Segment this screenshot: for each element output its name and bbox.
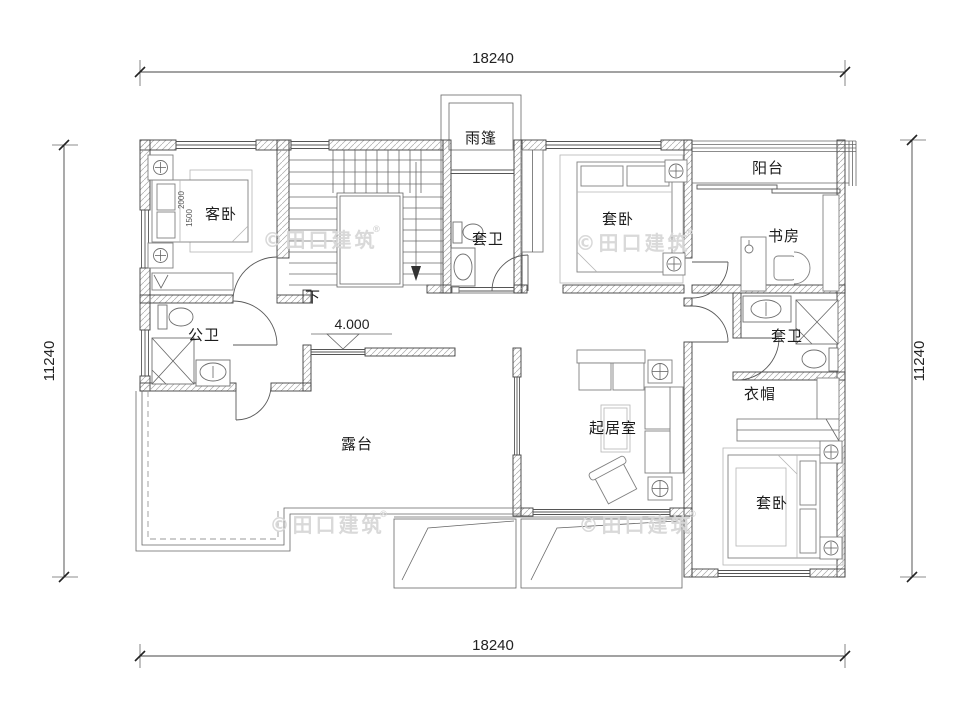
bed-width-dim: 1500 — [185, 209, 194, 227]
canopy-label: 雨篷 — [465, 129, 497, 147]
doors — [233, 255, 779, 420]
dimension-right: 11240 — [900, 135, 928, 582]
svg-text:©田口建筑: ©田口建筑 — [576, 231, 691, 255]
watermark: ©田口建筑 ® — [270, 510, 389, 537]
window-guest-bedroom-north — [176, 142, 256, 149]
entry-bath: 套卫 — [451, 222, 504, 293]
dim-top-value: 18240 — [472, 50, 514, 67]
closet — [152, 273, 233, 290]
suite-bedroom-top: 套卧 — [522, 150, 687, 283]
elevation-value: 4.000 — [334, 316, 369, 332]
suite-bath-label: 套卫 — [771, 327, 803, 345]
entry-bath-label: 套卫 — [472, 230, 504, 248]
shower — [152, 338, 194, 384]
suite-bedroom-bottom-label: 套卧 — [756, 494, 788, 512]
watermark: ©田口建筑 ® — [576, 228, 695, 255]
svg-text:©田口建筑: ©田口建筑 — [270, 513, 385, 537]
balcony: 阳台 — [692, 141, 856, 193]
bookshelf — [823, 195, 839, 291]
dimension-top: 18240 — [135, 50, 850, 86]
public-bath: 公卫 — [152, 305, 230, 386]
suite-bath: 套卫 — [743, 296, 838, 371]
svg-text:®: ® — [372, 225, 381, 235]
svg-text:®: ® — [685, 228, 694, 238]
side-table — [648, 360, 672, 383]
living-room: 起居室 — [577, 350, 683, 506]
guest-bedroom-label: 客卧 — [205, 205, 237, 223]
nightstand — [820, 537, 842, 559]
floor-plan-drawing: 18240 18240 11240 11240 雨篷 — [0, 0, 961, 722]
nightstand — [148, 243, 173, 268]
door-cloakroom-corridor — [692, 306, 728, 342]
dim-bottom-value: 18240 — [472, 637, 514, 654]
sink — [451, 248, 475, 286]
sink — [196, 360, 230, 386]
side-table — [648, 477, 672, 500]
dimension-bottom: 18240 — [135, 637, 850, 668]
svg-text:®: ® — [688, 510, 697, 520]
window-suite-bedroom-north — [546, 142, 661, 149]
chair — [774, 252, 810, 284]
dim-left-value: 11240 — [41, 341, 58, 382]
desk — [741, 237, 766, 291]
guest-bedroom: 2000 1500 客卧 — [148, 155, 252, 290]
elevation-marker: 4.000 — [311, 316, 392, 349]
watermark: ©田口建筑 ® — [263, 225, 382, 252]
svg-text:©田口建筑: ©田口建筑 — [263, 228, 378, 252]
terrace-label: 露台 — [341, 435, 373, 453]
suite-bedroom-top-label: 套卧 — [602, 210, 634, 228]
cloakroom: 衣帽 — [737, 378, 839, 441]
window-living-west — [515, 377, 520, 455]
watermark: ©田口建筑 ® — [579, 510, 698, 537]
door-guest-bedroom — [233, 257, 277, 302]
nightstand — [663, 253, 685, 275]
suite-bedroom-bottom: 套卧 — [723, 441, 843, 565]
window-guest-bedroom-west — [142, 210, 149, 268]
svg-text:©田口建筑: ©田口建筑 — [579, 513, 694, 537]
floor-plan-page: 18240 18240 11240 11240 雨篷 — [0, 0, 961, 722]
svg-text:®: ® — [379, 510, 388, 520]
dim-right-value: 11240 — [911, 341, 928, 382]
living-room-label: 起居室 — [589, 419, 637, 437]
balcony-label: 阳台 — [752, 159, 784, 177]
study: 书房 — [741, 195, 839, 291]
accent-chair — [588, 455, 640, 506]
stair-down-label: 下 — [305, 288, 321, 306]
sink — [743, 296, 791, 322]
study-label: 书房 — [768, 227, 800, 245]
public-bath-label: 公卫 — [188, 326, 220, 344]
nightstand — [820, 441, 842, 463]
closet — [522, 150, 543, 252]
dimension-left: 11240 — [41, 140, 78, 582]
window-suite-bedroom-south — [718, 571, 810, 577]
sliding-door — [697, 185, 840, 193]
door-terrace — [236, 385, 271, 420]
door-public-bath — [233, 301, 277, 345]
window-hall-north — [291, 142, 329, 149]
nightstand — [148, 155, 173, 180]
toilet — [802, 348, 838, 371]
window-hall-south — [311, 350, 365, 355]
bed-length-dim: 2000 — [177, 191, 186, 209]
cloakroom-label: 衣帽 — [744, 385, 776, 403]
nightstand — [665, 160, 687, 182]
window-public-bath-west — [142, 330, 149, 376]
